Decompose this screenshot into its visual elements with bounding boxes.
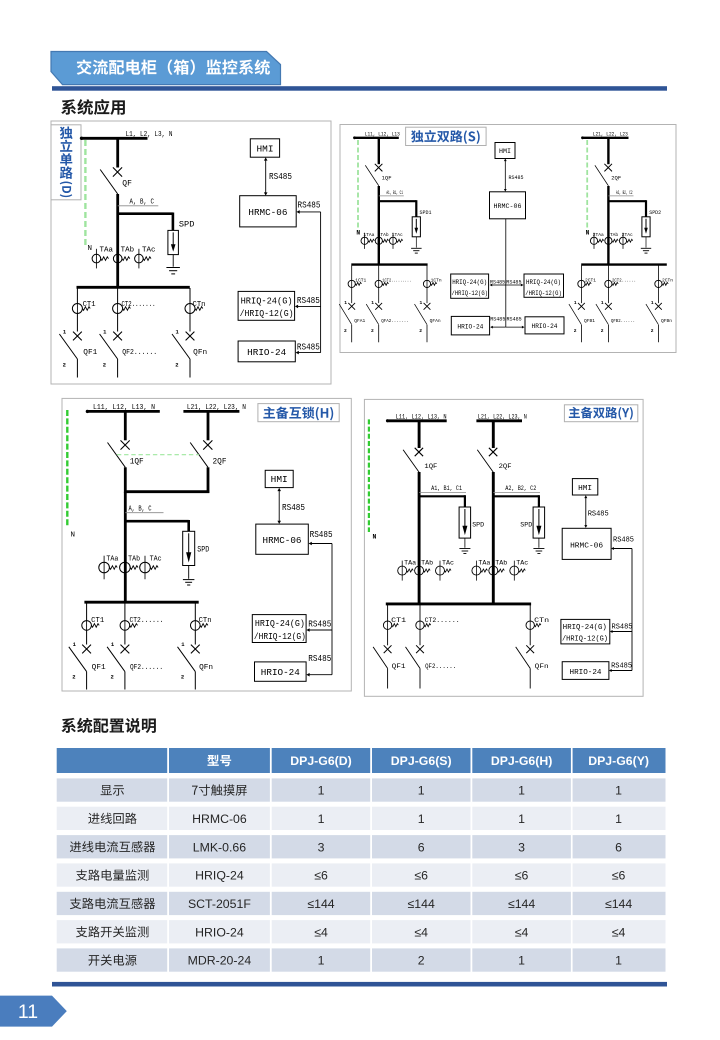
svg-text:HMI: HMI xyxy=(271,475,288,485)
svg-text:RS485: RS485 xyxy=(269,172,292,182)
svg-text:1: 1 xyxy=(418,784,425,798)
svg-text:≤6: ≤6 xyxy=(515,869,529,883)
svg-text:RS485: RS485 xyxy=(506,278,521,285)
svg-text:1: 1 xyxy=(574,300,577,306)
svg-text:2: 2 xyxy=(371,328,374,334)
svg-text:2: 2 xyxy=(651,328,654,334)
svg-text:N: N xyxy=(356,230,360,237)
svg-text:QF1: QF1 xyxy=(392,663,406,670)
svg-text:HRIQ-24(G): HRIQ-24(G) xyxy=(452,279,487,286)
svg-text:1: 1 xyxy=(418,812,425,826)
svg-text:CT2......: CT2...... xyxy=(425,617,460,624)
svg-text:L11, L12, L13: L11, L12, L13 xyxy=(365,130,400,137)
svg-text:2: 2 xyxy=(181,674,184,681)
svg-text:/HRIQ-12(G): /HRIQ-12(G) xyxy=(525,290,562,297)
svg-text:2TAc: 2TAc xyxy=(622,232,633,238)
svg-text:11: 11 xyxy=(18,1001,38,1023)
svg-text:HRIQ-24: HRIQ-24 xyxy=(195,869,244,883)
svg-text:MDR-20-24: MDR-20-24 xyxy=(188,954,252,968)
svg-text:2: 2 xyxy=(419,328,422,334)
svg-text:2TAb: 2TAb xyxy=(607,232,618,238)
svg-text:DPJ-G6(S): DPJ-G6(S) xyxy=(391,754,452,768)
svg-text:RS485: RS485 xyxy=(509,174,524,181)
svg-text:1: 1 xyxy=(518,812,525,826)
svg-text:1: 1 xyxy=(518,784,525,798)
svg-text:RS485: RS485 xyxy=(613,536,634,544)
svg-text:1: 1 xyxy=(601,300,604,306)
svg-text:HRIO-24: HRIO-24 xyxy=(457,323,483,330)
svg-text:3: 3 xyxy=(318,840,325,854)
svg-text:HRIQ-24(G): HRIQ-24(G) xyxy=(526,279,561,286)
svg-text:QF2......: QF2...... xyxy=(130,664,163,672)
svg-text:HRIO-24: HRIO-24 xyxy=(247,348,286,358)
svg-text:1TAb: 1TAb xyxy=(378,232,389,238)
svg-text:1: 1 xyxy=(371,300,374,306)
svg-text:QFn: QFn xyxy=(535,663,549,670)
svg-text:≤6: ≤6 xyxy=(314,869,328,883)
svg-text:/HRIQ-12(G): /HRIQ-12(G) xyxy=(240,309,294,319)
svg-text:2: 2 xyxy=(418,954,425,968)
svg-text:CTn: CTn xyxy=(534,617,549,624)
svg-text:QFBn: QFBn xyxy=(661,318,672,324)
svg-text:N: N xyxy=(586,230,590,237)
svg-text:CTn: CTn xyxy=(193,301,206,309)
svg-text:RS485: RS485 xyxy=(490,278,505,285)
svg-text:1QF: 1QF xyxy=(382,174,392,181)
svg-text:2CT2......: 2CT2...... xyxy=(612,277,636,283)
svg-text:QF2......: QF2...... xyxy=(425,663,456,670)
svg-text:QFB1: QFB1 xyxy=(584,318,595,324)
svg-text:QF: QF xyxy=(122,180,132,189)
svg-text:RS485: RS485 xyxy=(588,511,609,519)
svg-text:1QF: 1QF xyxy=(130,459,144,467)
svg-text:CTn: CTn xyxy=(199,617,212,625)
svg-text:QFB2......: QFB2...... xyxy=(611,318,635,324)
svg-text:SPD: SPD xyxy=(197,546,209,554)
svg-text:HRIQ-24(G): HRIQ-24(G) xyxy=(255,619,305,629)
svg-text:1: 1 xyxy=(518,954,525,968)
svg-text:TAa: TAa xyxy=(404,560,416,567)
svg-text:RS485: RS485 xyxy=(308,620,331,630)
svg-text:HRMC-06: HRMC-06 xyxy=(494,203,522,210)
svg-text:CT1: CT1 xyxy=(391,617,406,624)
svg-text:A2, B2, C2: A2, B2, C2 xyxy=(616,190,633,196)
svg-text:TAc: TAc xyxy=(442,560,454,567)
svg-text:L11, L12, L13, N: L11, L12, L13, N xyxy=(93,404,155,412)
svg-text:1: 1 xyxy=(318,954,325,968)
svg-text:/HRIQ-12(G): /HRIQ-12(G) xyxy=(254,632,306,642)
svg-text:TAb: TAb xyxy=(421,560,433,567)
svg-text:6: 6 xyxy=(418,840,425,854)
svg-text:≤144: ≤144 xyxy=(605,897,632,911)
svg-text:HRIO-24: HRIO-24 xyxy=(195,925,244,939)
svg-text:QFn: QFn xyxy=(193,349,207,357)
svg-text:RS485: RS485 xyxy=(490,315,505,322)
svg-text:RS485: RS485 xyxy=(298,201,321,211)
svg-text:1: 1 xyxy=(344,300,347,306)
svg-text:SPD: SPD xyxy=(472,521,484,529)
svg-text:SPD1: SPD1 xyxy=(420,209,432,216)
svg-text:HRMC-06: HRMC-06 xyxy=(263,536,302,546)
svg-text:QFn: QFn xyxy=(199,664,213,672)
svg-text:2QF: 2QF xyxy=(213,459,227,467)
svg-text:RS485: RS485 xyxy=(611,662,632,670)
svg-text:TAc: TAc xyxy=(516,560,528,567)
svg-text:TAb: TAb xyxy=(495,560,507,567)
svg-text:1: 1 xyxy=(615,812,622,826)
svg-text:QF1: QF1 xyxy=(92,664,106,672)
svg-text:2: 2 xyxy=(103,362,106,369)
svg-text:RS485: RS485 xyxy=(612,623,633,631)
svg-text:2TAa: 2TAa xyxy=(593,232,604,238)
svg-text:SPD2: SPD2 xyxy=(649,209,661,216)
svg-text:A, B, C: A, B, C xyxy=(130,199,155,207)
svg-text:TAa: TAa xyxy=(100,246,114,254)
svg-text:TAc: TAc xyxy=(142,246,156,254)
svg-text:TAc: TAc xyxy=(150,555,162,563)
svg-text:1TAc: 1TAc xyxy=(392,232,403,238)
svg-text:N: N xyxy=(88,245,93,253)
svg-text:/HRIQ-12(G): /HRIQ-12(G) xyxy=(452,290,489,297)
svg-text:≤4: ≤4 xyxy=(612,925,626,939)
svg-text:QF1: QF1 xyxy=(83,349,97,357)
svg-text:≤4: ≤4 xyxy=(414,925,428,939)
svg-text:LMK-0.66: LMK-0.66 xyxy=(193,840,246,854)
svg-text:2: 2 xyxy=(111,674,114,681)
svg-text:RS485: RS485 xyxy=(282,503,305,513)
svg-text:QFAn: QFAn xyxy=(430,318,441,324)
svg-text:1: 1 xyxy=(615,954,622,968)
svg-text:2: 2 xyxy=(344,328,347,334)
svg-text:HMI: HMI xyxy=(257,144,274,154)
svg-text:HRIO-24: HRIO-24 xyxy=(570,669,602,677)
svg-text:CT1: CT1 xyxy=(83,301,96,309)
svg-text:2CT1: 2CT1 xyxy=(585,277,596,283)
svg-text:TAa: TAa xyxy=(106,555,118,563)
svg-text:RS485: RS485 xyxy=(310,530,333,540)
svg-text:SCT-2051F: SCT-2051F xyxy=(188,897,251,911)
svg-text:RS485: RS485 xyxy=(308,654,331,664)
svg-text:CT1: CT1 xyxy=(91,617,104,625)
svg-text:TAa: TAa xyxy=(478,560,490,567)
svg-text:1TAa: 1TAa xyxy=(363,232,374,238)
svg-text:1CTn: 1CTn xyxy=(431,277,442,283)
svg-text:HRIO-24: HRIO-24 xyxy=(532,323,558,330)
svg-text:/HRIQ-12(G): /HRIQ-12(G) xyxy=(562,636,608,644)
svg-text:HRMC-06: HRMC-06 xyxy=(192,812,247,826)
svg-text:N: N xyxy=(373,534,377,541)
svg-text:3: 3 xyxy=(518,840,525,854)
svg-text:CT2......: CT2...... xyxy=(130,617,164,625)
svg-text:≤4: ≤4 xyxy=(515,925,529,939)
svg-text:1: 1 xyxy=(318,812,325,826)
svg-text:HRIQ-24(G): HRIQ-24(G) xyxy=(563,624,607,632)
svg-text:SPD: SPD xyxy=(520,521,532,529)
svg-text:L1, L2, L3, N: L1, L2, L3, N xyxy=(126,131,173,139)
svg-text:≤4: ≤4 xyxy=(314,925,328,939)
svg-text:RS485: RS485 xyxy=(507,315,522,322)
svg-text:2CTn: 2CTn xyxy=(662,277,673,283)
svg-text:QF2......: QF2...... xyxy=(122,349,157,357)
svg-text:RS485: RS485 xyxy=(297,296,320,306)
svg-text:HRMC-06: HRMC-06 xyxy=(248,208,287,218)
svg-text:DPJ-G6(H): DPJ-G6(H) xyxy=(491,754,553,768)
svg-text:TAb: TAb xyxy=(128,555,140,563)
svg-text:L21, L22, L23, N: L21, L22, L23, N xyxy=(187,404,246,412)
svg-text:HMI: HMI xyxy=(499,148,511,155)
svg-text:HRIQ-24(G): HRIQ-24(G) xyxy=(241,296,293,306)
svg-text:L21, L22, L23, N: L21, L22, L23, N xyxy=(478,414,527,421)
svg-text:2QF: 2QF xyxy=(611,174,621,181)
svg-text:1CT2.........: 1CT2......... xyxy=(382,277,411,283)
svg-text:HRIO-24: HRIO-24 xyxy=(261,668,300,678)
svg-text:HRMC-06: HRMC-06 xyxy=(570,542,603,550)
svg-text:QFA2.......: QFA2....... xyxy=(381,318,409,324)
svg-text:2QF: 2QF xyxy=(499,463,512,471)
svg-text:2: 2 xyxy=(601,328,604,334)
svg-text:A2, B2, C2: A2, B2, C2 xyxy=(505,485,536,492)
svg-text:HMI: HMI xyxy=(578,485,592,493)
svg-text:L11, L12, L13, N: L11, L12, L13, N xyxy=(396,414,447,421)
svg-text:QFA1: QFA1 xyxy=(354,318,365,324)
svg-text:1: 1 xyxy=(651,300,654,306)
svg-text:CT2.......: CT2....... xyxy=(122,301,156,309)
svg-text:1: 1 xyxy=(420,300,423,306)
svg-text:2: 2 xyxy=(72,674,75,681)
svg-text:SPD: SPD xyxy=(179,221,195,230)
svg-text:A1, B1, C1: A1, B1, C1 xyxy=(431,485,462,492)
svg-text:1: 1 xyxy=(318,784,325,798)
svg-text:A1, B1, C1: A1, B1, C1 xyxy=(386,190,403,196)
svg-text:2: 2 xyxy=(574,328,577,334)
svg-text:≤6: ≤6 xyxy=(612,869,626,883)
svg-text:L21, L22, L23: L21, L22, L23 xyxy=(593,130,628,137)
svg-text:RS485: RS485 xyxy=(297,342,320,352)
svg-text:2: 2 xyxy=(63,362,66,369)
svg-text:6: 6 xyxy=(615,840,622,854)
svg-text:DPJ-G6(Y): DPJ-G6(Y) xyxy=(588,754,649,768)
svg-text:≤144: ≤144 xyxy=(408,897,435,911)
svg-text:1CT1: 1CT1 xyxy=(355,277,366,283)
svg-text:≤6: ≤6 xyxy=(414,869,428,883)
svg-text:1: 1 xyxy=(615,784,622,798)
svg-text:TAb: TAb xyxy=(121,246,135,254)
svg-text:2: 2 xyxy=(175,362,178,369)
svg-text:≤144: ≤144 xyxy=(307,897,334,911)
svg-text:DPJ-G6(D): DPJ-G6(D) xyxy=(290,754,352,768)
svg-text:1QF: 1QF xyxy=(424,463,437,471)
svg-text:≤144: ≤144 xyxy=(508,897,535,911)
svg-text:N: N xyxy=(71,532,76,540)
